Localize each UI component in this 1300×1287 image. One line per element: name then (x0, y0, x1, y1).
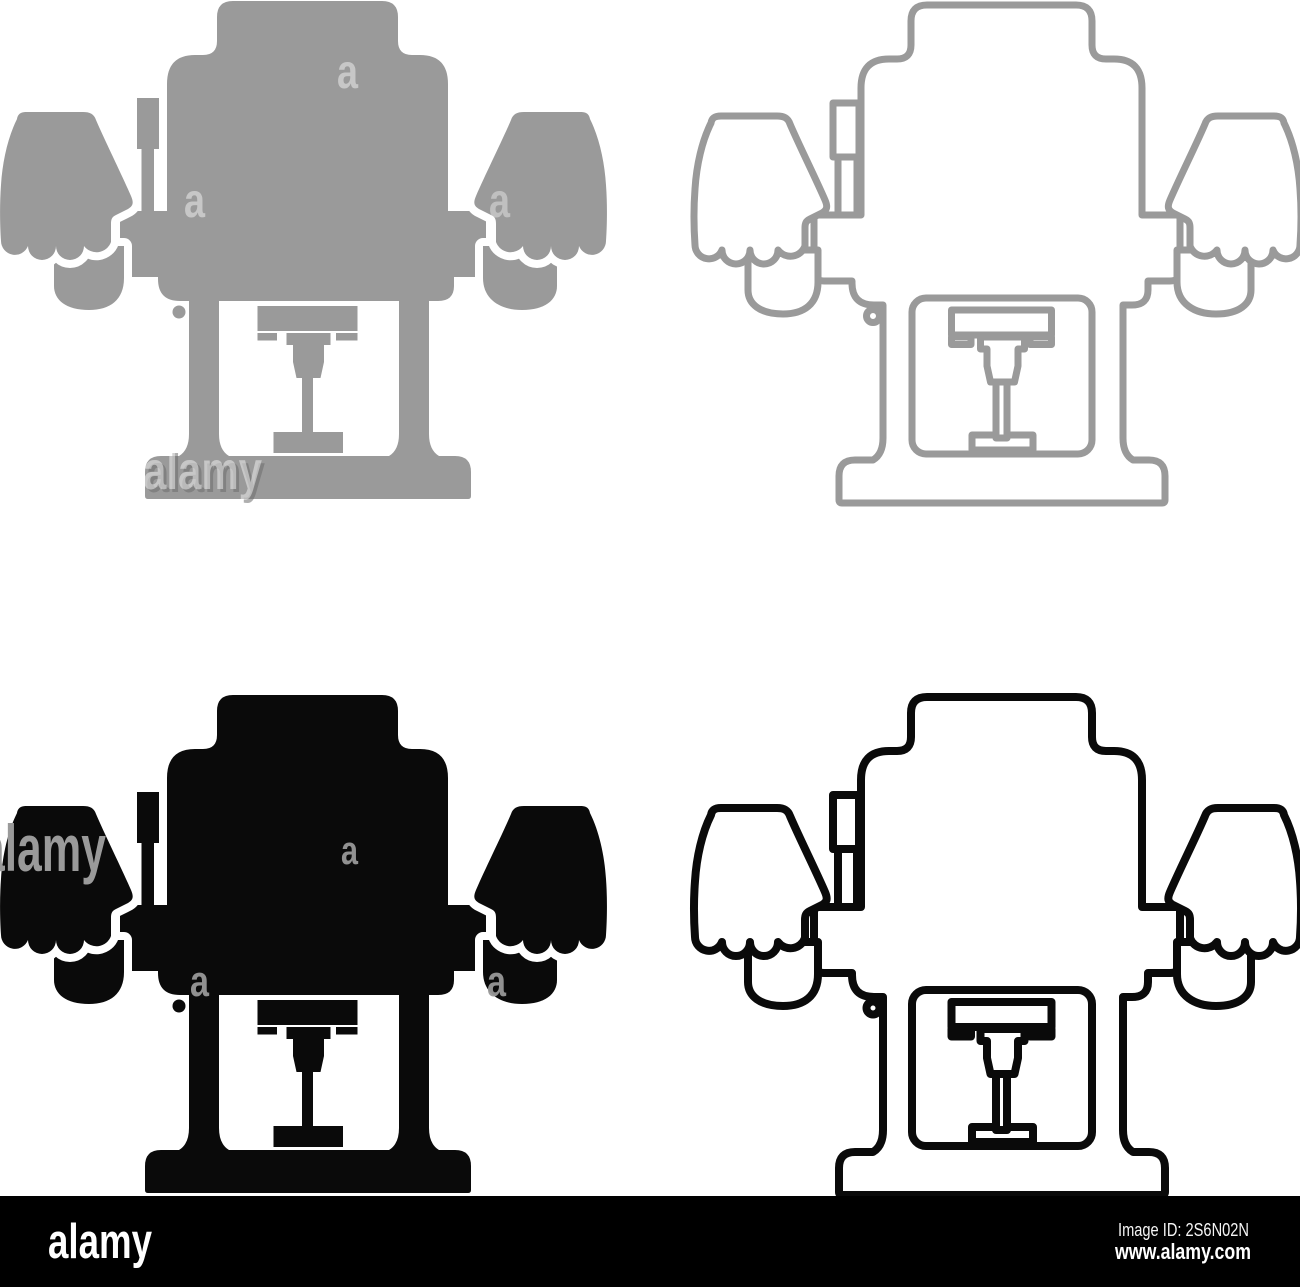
svg-text:alamy: alamy (143, 441, 262, 501)
svg-text:a: a (184, 175, 205, 228)
svg-text:www.alamy.com: www.alamy.com (1114, 1239, 1251, 1264)
svg-text:a: a (337, 46, 358, 99)
svg-text:a: a (489, 175, 510, 228)
svg-text:a: a (341, 829, 359, 873)
svg-text:a: a (190, 957, 209, 1006)
svg-text:alamy: alamy (48, 1215, 152, 1269)
svg-text:Image ID: 2S6N02N: Image ID: 2S6N02N (1118, 1220, 1249, 1240)
svg-text:a: a (487, 957, 506, 1006)
svg-text:alamy: alamy (0, 811, 106, 885)
